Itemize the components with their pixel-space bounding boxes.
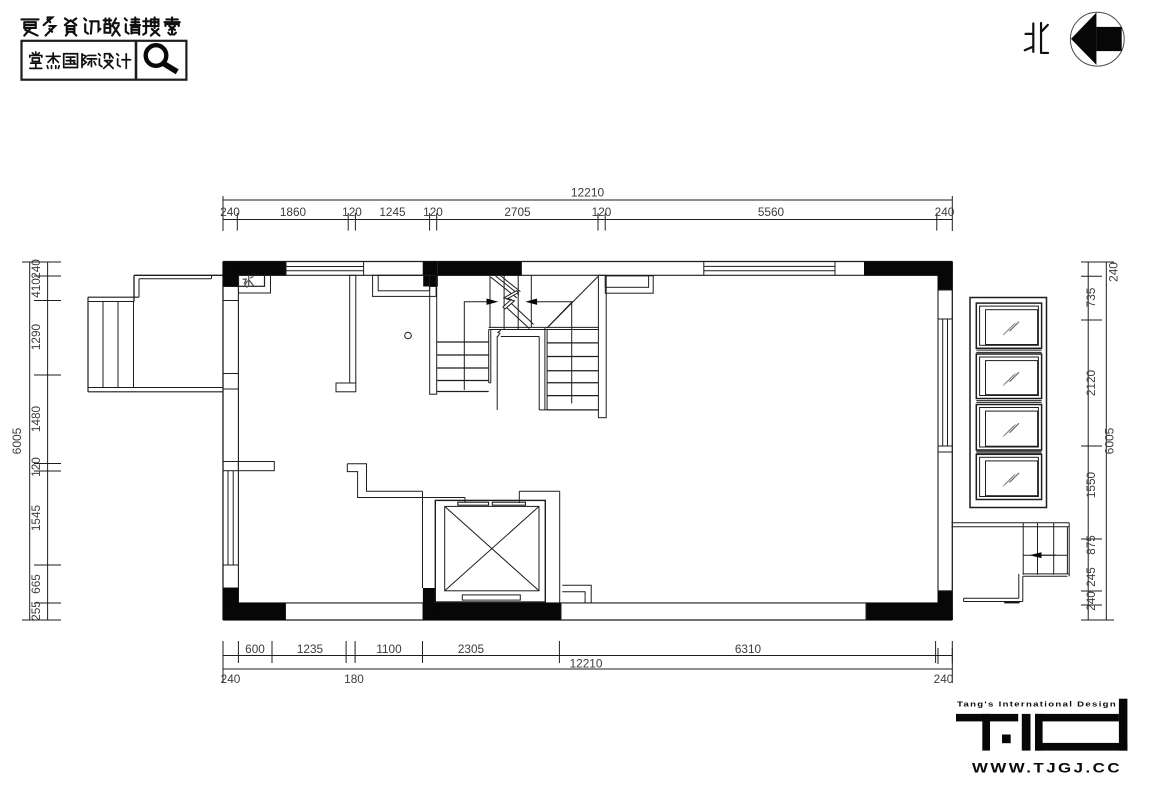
svg-text:120: 120 [29,457,43,477]
svg-text:5560: 5560 [758,205,785,219]
svg-text:1550: 1550 [1084,471,1098,498]
svg-text:240: 240 [1084,591,1098,611]
svg-text:120: 120 [592,205,612,219]
svg-text:1545: 1545 [29,504,43,531]
svg-text:1235: 1235 [297,642,324,656]
svg-text:120: 120 [423,205,443,219]
svg-text:1480: 1480 [29,405,43,432]
svg-text:2705: 2705 [504,205,531,219]
svg-text:WWW.TJGJ.CC: WWW.TJGJ.CC [972,761,1122,776]
svg-text:240: 240 [935,205,955,219]
svg-text:Tang's International Design: Tang's International Design [957,700,1117,709]
svg-text:2305: 2305 [458,642,485,656]
svg-text:600: 600 [245,642,265,656]
svg-text:1290: 1290 [29,323,43,350]
svg-text:1245: 1245 [379,205,406,219]
svg-text:240: 240 [220,205,240,219]
svg-text:180: 180 [344,672,364,686]
svg-text:120: 120 [342,205,362,219]
svg-text:240: 240 [934,672,954,686]
svg-text:245: 245 [1084,567,1098,587]
svg-text:240: 240 [1107,262,1121,282]
svg-text:12210: 12210 [571,186,605,200]
svg-text:1100: 1100 [376,642,402,656]
svg-text:6310: 6310 [735,642,762,656]
svg-text:2120: 2120 [1084,369,1098,396]
svg-text:240: 240 [221,672,241,686]
svg-text:1860: 1860 [280,205,307,219]
svg-text:6005: 6005 [10,427,24,454]
svg-text:665: 665 [29,574,43,594]
svg-text:735: 735 [1084,287,1098,307]
svg-text:6005: 6005 [1103,427,1117,454]
svg-text:255: 255 [29,601,43,621]
svg-text:410: 410 [29,278,43,298]
svg-text:875: 875 [1084,535,1098,555]
svg-text:12210: 12210 [570,656,603,670]
